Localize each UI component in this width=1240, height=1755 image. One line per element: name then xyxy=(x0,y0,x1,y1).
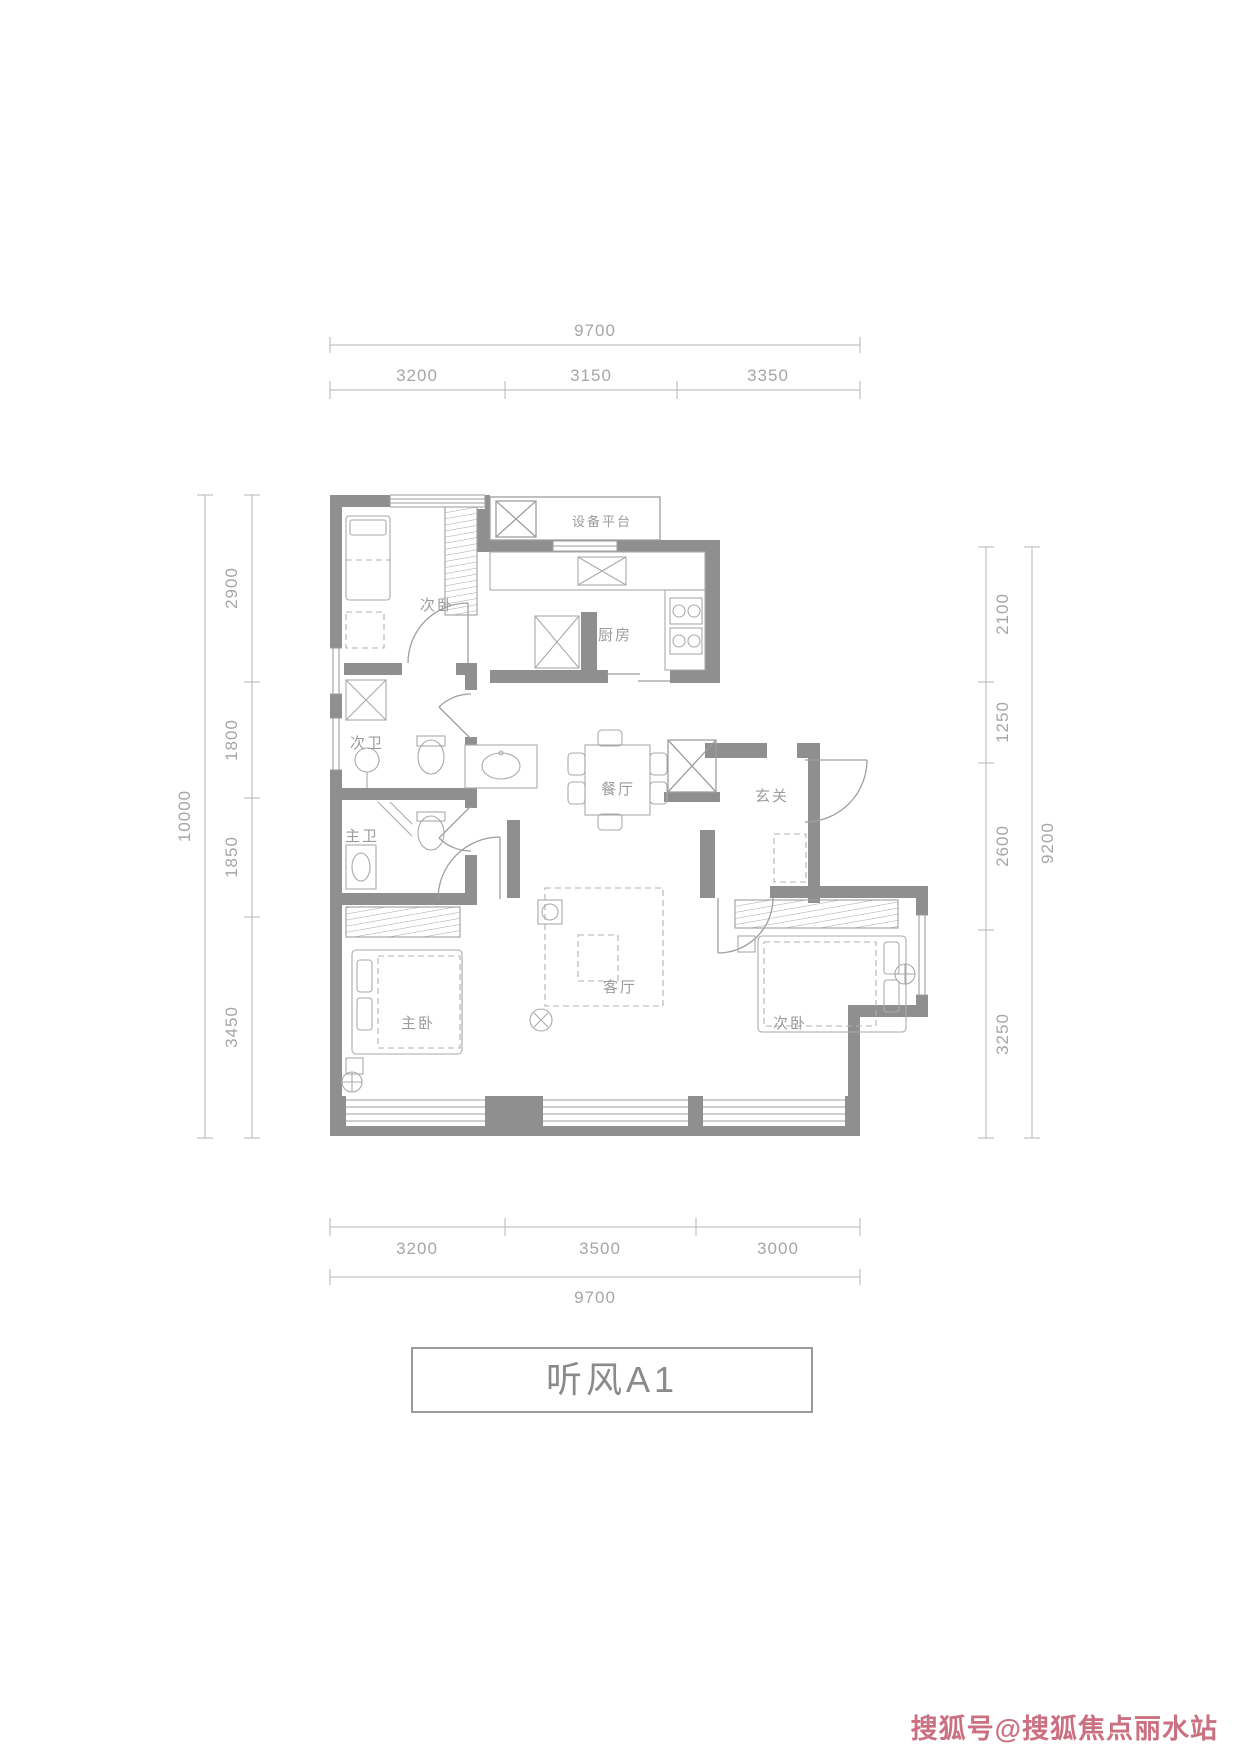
dim-right-seg-4: 3250 xyxy=(993,1013,1012,1055)
dimensions-top: 9700 3200 3150 3350 xyxy=(330,321,860,399)
dimensions-left: 10000 2900 1800 1850 3450 xyxy=(175,495,260,1138)
watermark-text: 搜狐号@搜狐焦点丽水站 xyxy=(911,1713,1218,1744)
column-symbol xyxy=(342,1072,362,1092)
dim-bottom-seg-2: 3500 xyxy=(579,1239,621,1258)
watermark: 搜狐号@搜狐焦点丽水站 搜狐号@搜狐焦点丽水站 xyxy=(911,1713,1221,1747)
dim-top-total: 9700 xyxy=(574,321,616,340)
window-band-bottom xyxy=(346,1100,845,1121)
label-master-bedroom: 主卧 xyxy=(401,1015,435,1032)
dim-left-total: 10000 xyxy=(175,790,194,842)
label-master-bath: 主卫 xyxy=(345,828,379,845)
room-labels: 次卧 设备平台 厨房 次卫 主卫 餐厅 玄关 主卧 客厅 次卧 xyxy=(345,514,807,1032)
dim-top-seg-3: 3350 xyxy=(747,366,789,385)
stove xyxy=(670,598,702,624)
br-bedroom-furniture xyxy=(735,900,915,1032)
label-kitchen: 厨房 xyxy=(598,627,632,644)
plan-title: 听风A1 xyxy=(546,1359,678,1400)
label-secondary-bath: 次卫 xyxy=(350,735,384,752)
bed-master xyxy=(352,950,462,1054)
column-symbol xyxy=(895,964,915,984)
door-kitchen-slider xyxy=(606,674,670,681)
master-bath-fixtures xyxy=(346,802,445,889)
dim-bottom-total: 9700 xyxy=(574,1288,616,1307)
dim-right-seg-1: 2100 xyxy=(993,593,1012,635)
shoe-cabinet xyxy=(774,834,806,882)
wardrobe-master xyxy=(346,907,460,937)
floor-plan-page: 9700 3200 3150 3350 3200 3500 3000 9700 … xyxy=(0,0,1240,1755)
coffee-table xyxy=(578,935,618,981)
dimensions-right: 2100 1250 2600 3250 9200 xyxy=(978,547,1057,1138)
plant xyxy=(530,1009,552,1031)
dim-top-seg-2: 3150 xyxy=(570,366,612,385)
label-br-bedroom: 次卧 xyxy=(773,1015,807,1032)
window-left-bath-1 xyxy=(328,648,344,694)
dim-left-seg-3: 1850 xyxy=(222,836,241,878)
kitchen-fixtures xyxy=(490,552,705,670)
floor-plan-canvas: 9700 3200 3150 3350 3200 3500 3000 9700 … xyxy=(0,0,1240,1755)
dining-set xyxy=(568,730,667,830)
window-bay-right xyxy=(914,915,930,995)
wardrobe-br xyxy=(735,900,898,928)
dim-right-seg-2: 1250 xyxy=(993,701,1012,743)
living-room-furniture xyxy=(530,888,663,1031)
bath-sink xyxy=(346,845,376,889)
dim-top-seg-1: 3200 xyxy=(396,366,438,385)
label-tl-bedroom: 次卧 xyxy=(420,597,454,614)
dim-left-seg-1: 2900 xyxy=(222,567,241,609)
door-secondary-bath xyxy=(439,694,471,739)
toilet xyxy=(418,740,444,774)
dim-left-seg-4: 3450 xyxy=(222,1006,241,1048)
title-box: 听风A1 xyxy=(412,1348,812,1412)
dimensions-bottom: 3200 3500 3000 9700 xyxy=(330,1218,860,1307)
label-living: 客厅 xyxy=(603,979,637,996)
label-dining: 餐厅 xyxy=(601,781,635,798)
label-equipment-platform: 设备平台 xyxy=(572,514,632,529)
shower-door xyxy=(378,802,412,836)
dim-bottom-seg-3: 3000 xyxy=(757,1239,799,1258)
label-foyer: 玄关 xyxy=(755,788,789,805)
master-bedroom-furniture xyxy=(342,907,462,1092)
shaft xyxy=(668,740,716,792)
vanity xyxy=(465,745,537,788)
dim-right-total: 9200 xyxy=(1038,822,1057,864)
dim-left-seg-2: 1800 xyxy=(222,719,241,761)
tl-bedroom-furniture xyxy=(346,507,477,648)
secondary-bath-fixtures xyxy=(346,680,445,788)
window-left-bath-2 xyxy=(328,718,344,770)
dim-right-seg-3: 2600 xyxy=(993,825,1012,867)
dim-bottom-seg-1: 3200 xyxy=(396,1239,438,1258)
